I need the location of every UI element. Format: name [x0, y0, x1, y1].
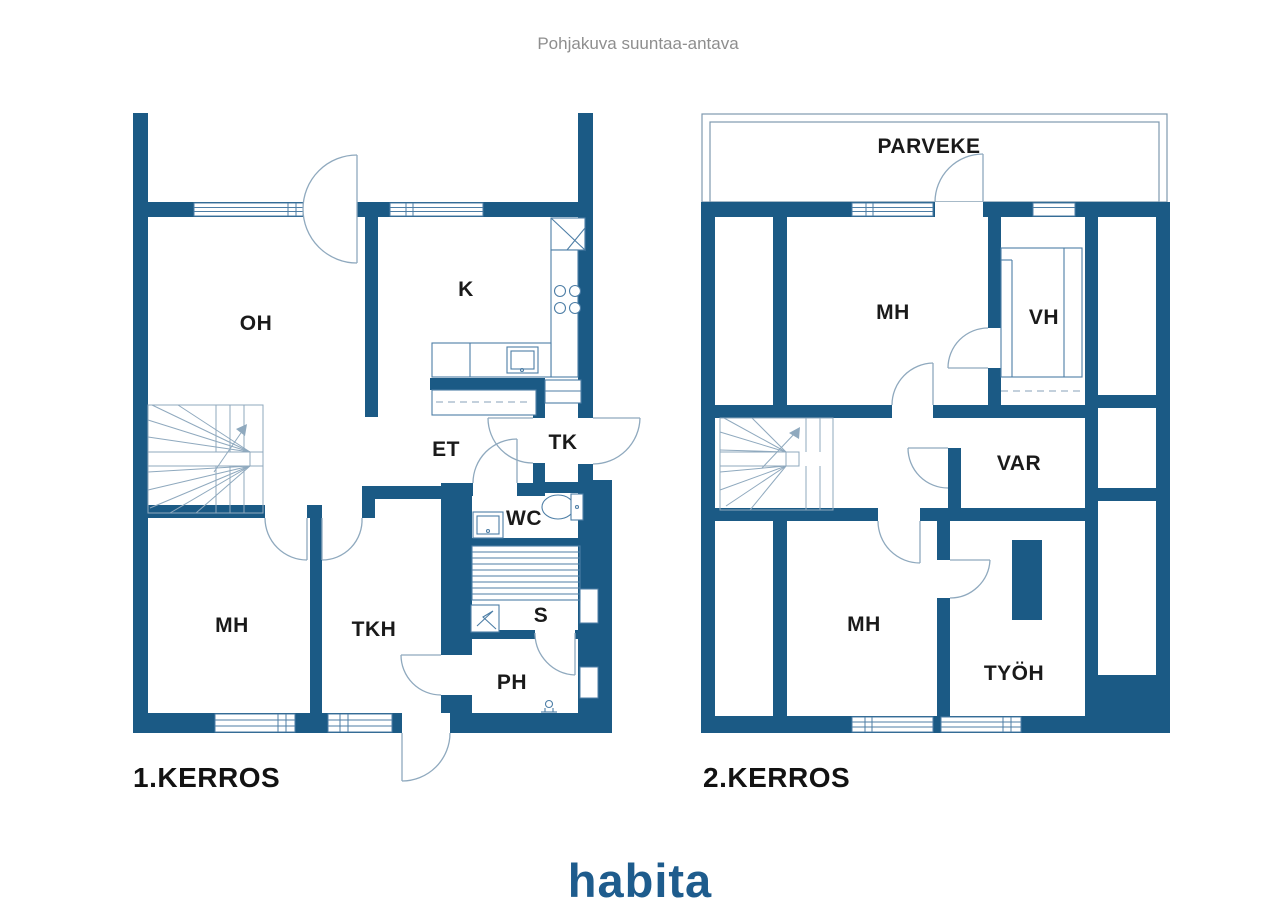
room-label-k: K	[458, 278, 474, 301]
sauna-benches	[472, 546, 580, 600]
room-label-et: ET	[432, 438, 460, 461]
room-label-mh-top: MH	[876, 301, 910, 324]
room-label-oh: OH	[240, 312, 273, 335]
floorplan-canvas: Pohjakuva suuntaa-antava	[0, 0, 1280, 905]
room-label-ph: PH	[497, 671, 527, 694]
room-label-tyoh: TYÖH	[984, 662, 1044, 685]
sauna-stove-icon	[471, 605, 499, 632]
floor2-name-label: 2.KERROS	[703, 762, 850, 793]
page-title: Pohjakuva suuntaa-antava	[537, 34, 739, 53]
floor1-stairs	[148, 405, 263, 513]
floor2-doors	[878, 154, 990, 598]
room-label-mh-f1: MH	[215, 614, 249, 637]
shower-icon	[541, 701, 557, 713]
room-label-wc: WC	[506, 507, 542, 530]
room-label-tk: TK	[549, 431, 578, 454]
floor1-plan: OH K ET TK WC S PH MH TKH 1.KERROS	[133, 113, 640, 793]
floorplan-page: Pohjakuva suuntaa-antava	[0, 0, 1280, 905]
wc-sink-icon	[473, 512, 503, 538]
room-label-sauna: S	[534, 604, 549, 627]
room-label-var: VAR	[997, 452, 1041, 475]
floor1-name-label: 1.KERROS	[133, 762, 280, 793]
room-label-vh: VH	[1029, 306, 1059, 329]
toilet-icon	[542, 494, 583, 520]
habita-logo: habita	[568, 854, 712, 905]
floor2-windows	[852, 203, 1075, 732]
floor2-openings	[935, 202, 983, 217]
floor2-plan: PARVEKE MH VH VAR MH TYÖH 2.KERROS	[701, 114, 1170, 793]
balcony-railing	[702, 114, 1167, 202]
chimney-block	[1012, 540, 1042, 620]
balcony-label: PARVEKE	[877, 135, 980, 158]
room-label-tkh: TKH	[352, 618, 397, 641]
stairs-up-arrow	[762, 432, 796, 468]
room-label-mh-bottom: MH	[847, 613, 881, 636]
floor2-stairs	[720, 418, 833, 510]
